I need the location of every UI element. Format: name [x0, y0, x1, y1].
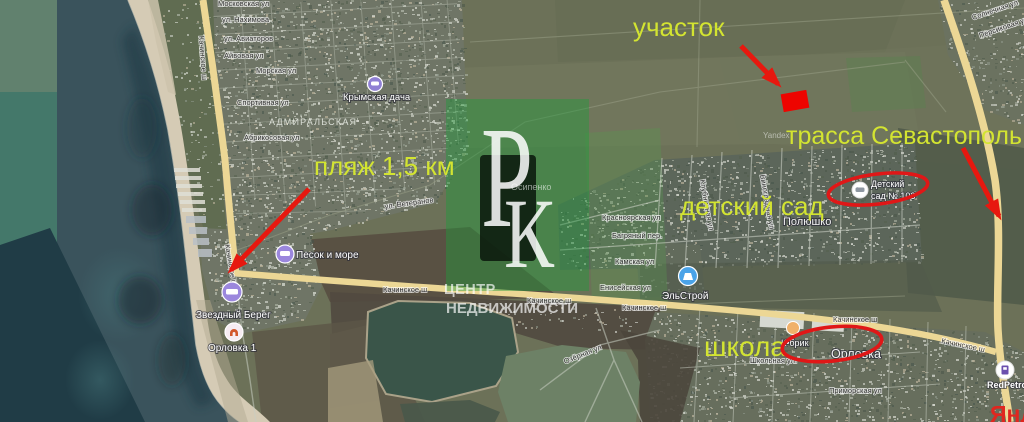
svg-text:Качинское ш: Качинское ш: [383, 285, 427, 294]
svg-text:Енисейская ул: Енисейская ул: [600, 283, 651, 292]
svg-text:Детский: Детский: [871, 179, 904, 189]
svg-text:Приморская ул: Приморская ул: [829, 386, 882, 395]
svg-text:ЦЕНТР: ЦЕНТР: [444, 282, 496, 298]
svg-text:Багряный пер.: Багряный пер.: [612, 231, 662, 240]
svg-text:ул. Авиаторов: ул. Авиаторов: [224, 34, 273, 43]
svg-text:НЕДВИЖИМОСТИ: НЕДВИЖИМОСТИ: [446, 300, 578, 317]
svg-text:К: К: [504, 178, 555, 289]
svg-text:Московская ул: Московская ул: [218, 0, 269, 8]
svg-text:Морская ул: Морская ул: [256, 66, 296, 75]
svg-text:Качинское ш: Качинское ш: [622, 303, 666, 312]
svg-text:школа: школа: [704, 331, 786, 362]
svg-text:Орловка 1: Орловка 1: [208, 343, 257, 354]
svg-text:Айвовая ул: Айвовая ул: [224, 51, 263, 60]
svg-text:Спортивная ул: Спортивная ул: [237, 98, 289, 107]
svg-text:АДМИРАЛЬСКАЯ: АДМИРАЛЬСКАЯ: [269, 117, 357, 127]
svg-text:трасса Севастополь: трасса Севастополь: [786, 122, 1022, 150]
svg-text:пляж 1,5 км: пляж 1,5 км: [314, 151, 455, 181]
svg-text:участок: участок: [633, 12, 725, 42]
svg-text:Камская ул: Камская ул: [615, 257, 654, 266]
svg-text:ул. Нахимова: ул. Нахимова: [222, 15, 270, 24]
svg-text:детский сад: детский сад: [680, 191, 824, 221]
svg-text:RedPetro: RedPetro: [987, 380, 1024, 390]
svg-text:ЭльСтрой: ЭльСтрой: [662, 291, 708, 302]
svg-text:Осипенко: Осипенко: [511, 182, 551, 192]
svg-text:Крымская дача: Крымская дача: [343, 92, 411, 103]
svg-text:Красноярская ул: Красноярская ул: [602, 213, 660, 222]
svg-text:Качинское ш: Качинское ш: [833, 315, 877, 324]
svg-text:Абрикосовая ул: Абрикосовая ул: [244, 133, 299, 142]
svg-text:Песок и море: Песок и море: [296, 250, 359, 261]
svg-text:Янд: Янд: [990, 401, 1024, 422]
svg-text:Звездный Берег: Звездный Берег: [196, 310, 271, 321]
